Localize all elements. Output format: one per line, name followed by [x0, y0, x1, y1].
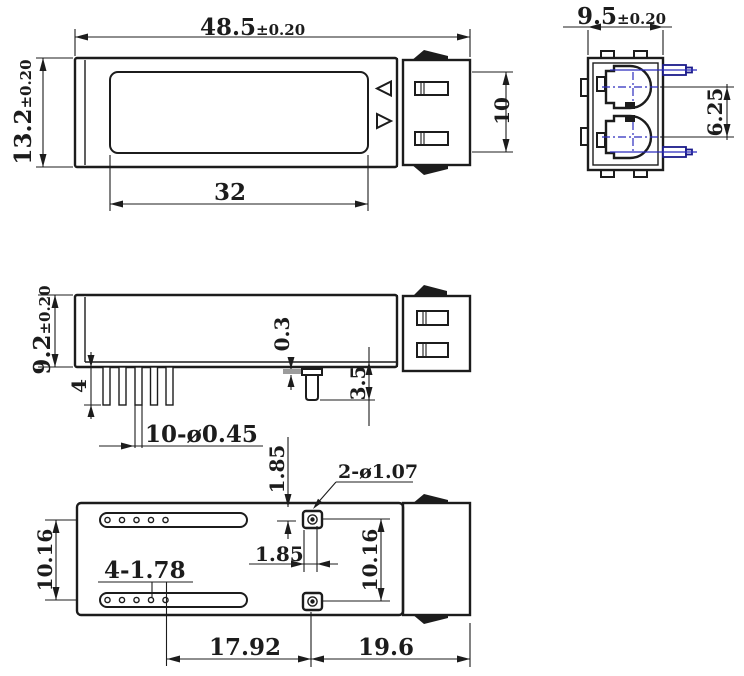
dim-port-pitch: 6.25 — [660, 84, 734, 140]
peg-pad-lower — [303, 593, 322, 610]
bottom-view: 10.16 4-1.78 1.85 1.85 10.16 — [33, 437, 470, 667]
callout-text-pin-diameter: 10-ø0.45 — [145, 421, 258, 448]
latch-block-outline — [403, 503, 470, 615]
dim-text-end-width: 9.5±0.20 — [577, 3, 666, 30]
dim-text-overall-length: 48.5±0.20 — [200, 14, 305, 41]
hole — [119, 597, 124, 602]
drawing-canvas: 48.5±0.20 13.2±0.20 32 10 — [0, 0, 744, 676]
through-hole-pins — [103, 367, 173, 405]
hole — [119, 517, 124, 522]
dim-peg-height: 3.5 — [320, 347, 375, 426]
hole — [134, 517, 139, 522]
dim-overall-length: 48.5±0.20 — [75, 14, 470, 57]
dim-overall-height: 13.2±0.20 — [10, 58, 73, 167]
pin — [135, 367, 142, 405]
dim-text-boss-height: 0.3 — [270, 317, 294, 352]
dim-peg-to-edge: 19.6 — [311, 623, 470, 667]
dim-end-width: 9.5±0.20 — [563, 3, 672, 55]
slot-holes-upper — [105, 517, 168, 522]
hole — [105, 517, 110, 522]
module-body-outline — [75, 58, 397, 167]
dim-text-port-pitch: 6.25 — [703, 88, 727, 137]
callout-text-hole-pitch: 4-1.78 — [104, 557, 186, 584]
callout-hole-pitch: 4-1.78 — [98, 557, 193, 666]
dim-text-label-window: 32 — [214, 179, 246, 206]
vent-slot-upper — [100, 513, 247, 527]
end-view: 9.5±0.20 6.25 — [563, 3, 734, 177]
contact-pad-top — [417, 311, 448, 325]
label-window — [110, 72, 368, 153]
pin — [119, 367, 126, 405]
hole — [148, 597, 153, 602]
pin — [103, 367, 110, 405]
contact-pad-outline — [415, 82, 448, 95]
dim-text-connector-slot: 10 — [490, 97, 514, 125]
engineering-drawing-page: 48.5±0.20 13.2±0.20 32 10 — [0, 0, 744, 676]
latch-block-outline — [403, 60, 470, 165]
pin — [166, 367, 173, 405]
top-view: 48.5±0.20 13.2±0.20 32 10 — [10, 14, 514, 211]
peg-pad-upper — [303, 511, 322, 528]
dim-holes-to-peg: 17.92 — [167, 612, 311, 667]
pin — [151, 367, 158, 405]
pad-hole — [310, 599, 314, 603]
hole — [134, 597, 139, 602]
slot-holes-lower — [105, 597, 168, 602]
contact-pad-outline — [417, 311, 448, 325]
dim-text-peg-to-edge: 19.6 — [358, 634, 414, 661]
dim-peg-offset-vertical: 1.85 — [265, 437, 296, 539]
dim-text-peg-pitch: 10.16 — [358, 529, 382, 592]
dim-peg-pitch: 10.16 — [322, 519, 390, 601]
dim-side-height: 9.2±0.20 — [29, 285, 73, 374]
pad-hole — [310, 517, 314, 521]
hole — [163, 517, 168, 522]
hole — [105, 597, 110, 602]
side-view: 9.2±0.20 4 10-ø0.45 0.3 3.5 — [29, 285, 470, 450]
dim-label-window-length: 32 — [110, 155, 368, 211]
dim-peg-offset-horizontal: 1.85 — [249, 526, 338, 572]
dim-text-slot-pitch: 10.16 — [33, 529, 57, 592]
dim-text-peg-height: 3.5 — [346, 366, 370, 401]
dim-boss-height: 0.3 — [270, 317, 295, 390]
contact-pad-top — [415, 82, 448, 95]
contact-pad-outline — [415, 132, 448, 145]
dim-text-side-height: 9.2±0.20 — [29, 285, 56, 374]
port-latch-key — [625, 115, 635, 122]
mounting-peg — [306, 375, 318, 400]
dim-slot-pitch: 10.16 — [33, 520, 76, 600]
contact-pad-bottom — [415, 132, 448, 145]
arrow-right-icon — [377, 114, 391, 128]
vent-slot-lower — [100, 593, 247, 607]
end-body-outline — [588, 58, 663, 170]
hole — [148, 517, 153, 522]
callout-text-peg-diameter: 2-ø1.07 — [338, 461, 418, 483]
hole — [163, 597, 168, 602]
dim-text-pin-length: 4 — [67, 379, 91, 393]
latch-block-outline — [403, 296, 470, 371]
dim-text-peg-offset-h: 1.85 — [255, 542, 304, 566]
dim-text-overall-height: 13.2±0.20 — [10, 59, 37, 164]
callout-pin-diameter: 10-ø0.45 — [99, 405, 263, 450]
port-latch-key — [625, 102, 635, 109]
module-body-outline — [75, 295, 397, 367]
latch-wedge-top — [413, 285, 447, 296]
contact-pad-outline — [417, 343, 448, 357]
contact-pad-bottom — [417, 343, 448, 357]
dim-connector-slot-height: 10 — [472, 72, 514, 152]
dim-text-peg-offset-v: 1.85 — [265, 445, 289, 494]
dim-text-holes-to-peg: 17.92 — [209, 634, 281, 661]
arrow-left-icon — [377, 82, 391, 96]
